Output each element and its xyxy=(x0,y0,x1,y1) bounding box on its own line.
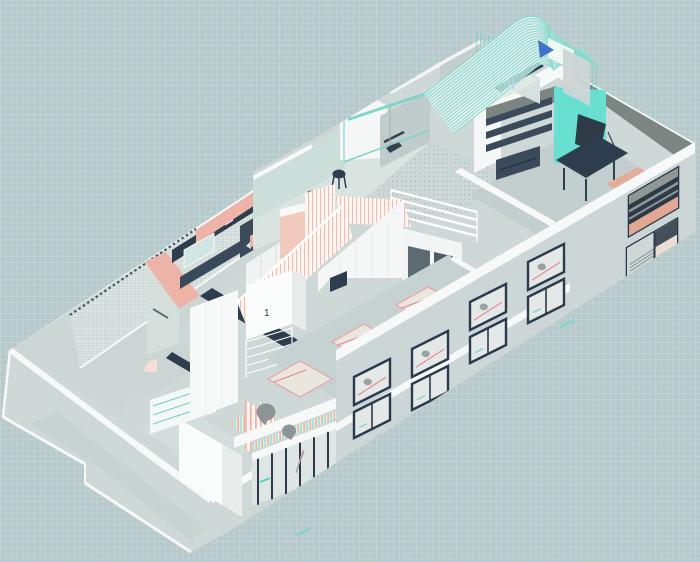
svg-text:1: 1 xyxy=(264,308,270,319)
